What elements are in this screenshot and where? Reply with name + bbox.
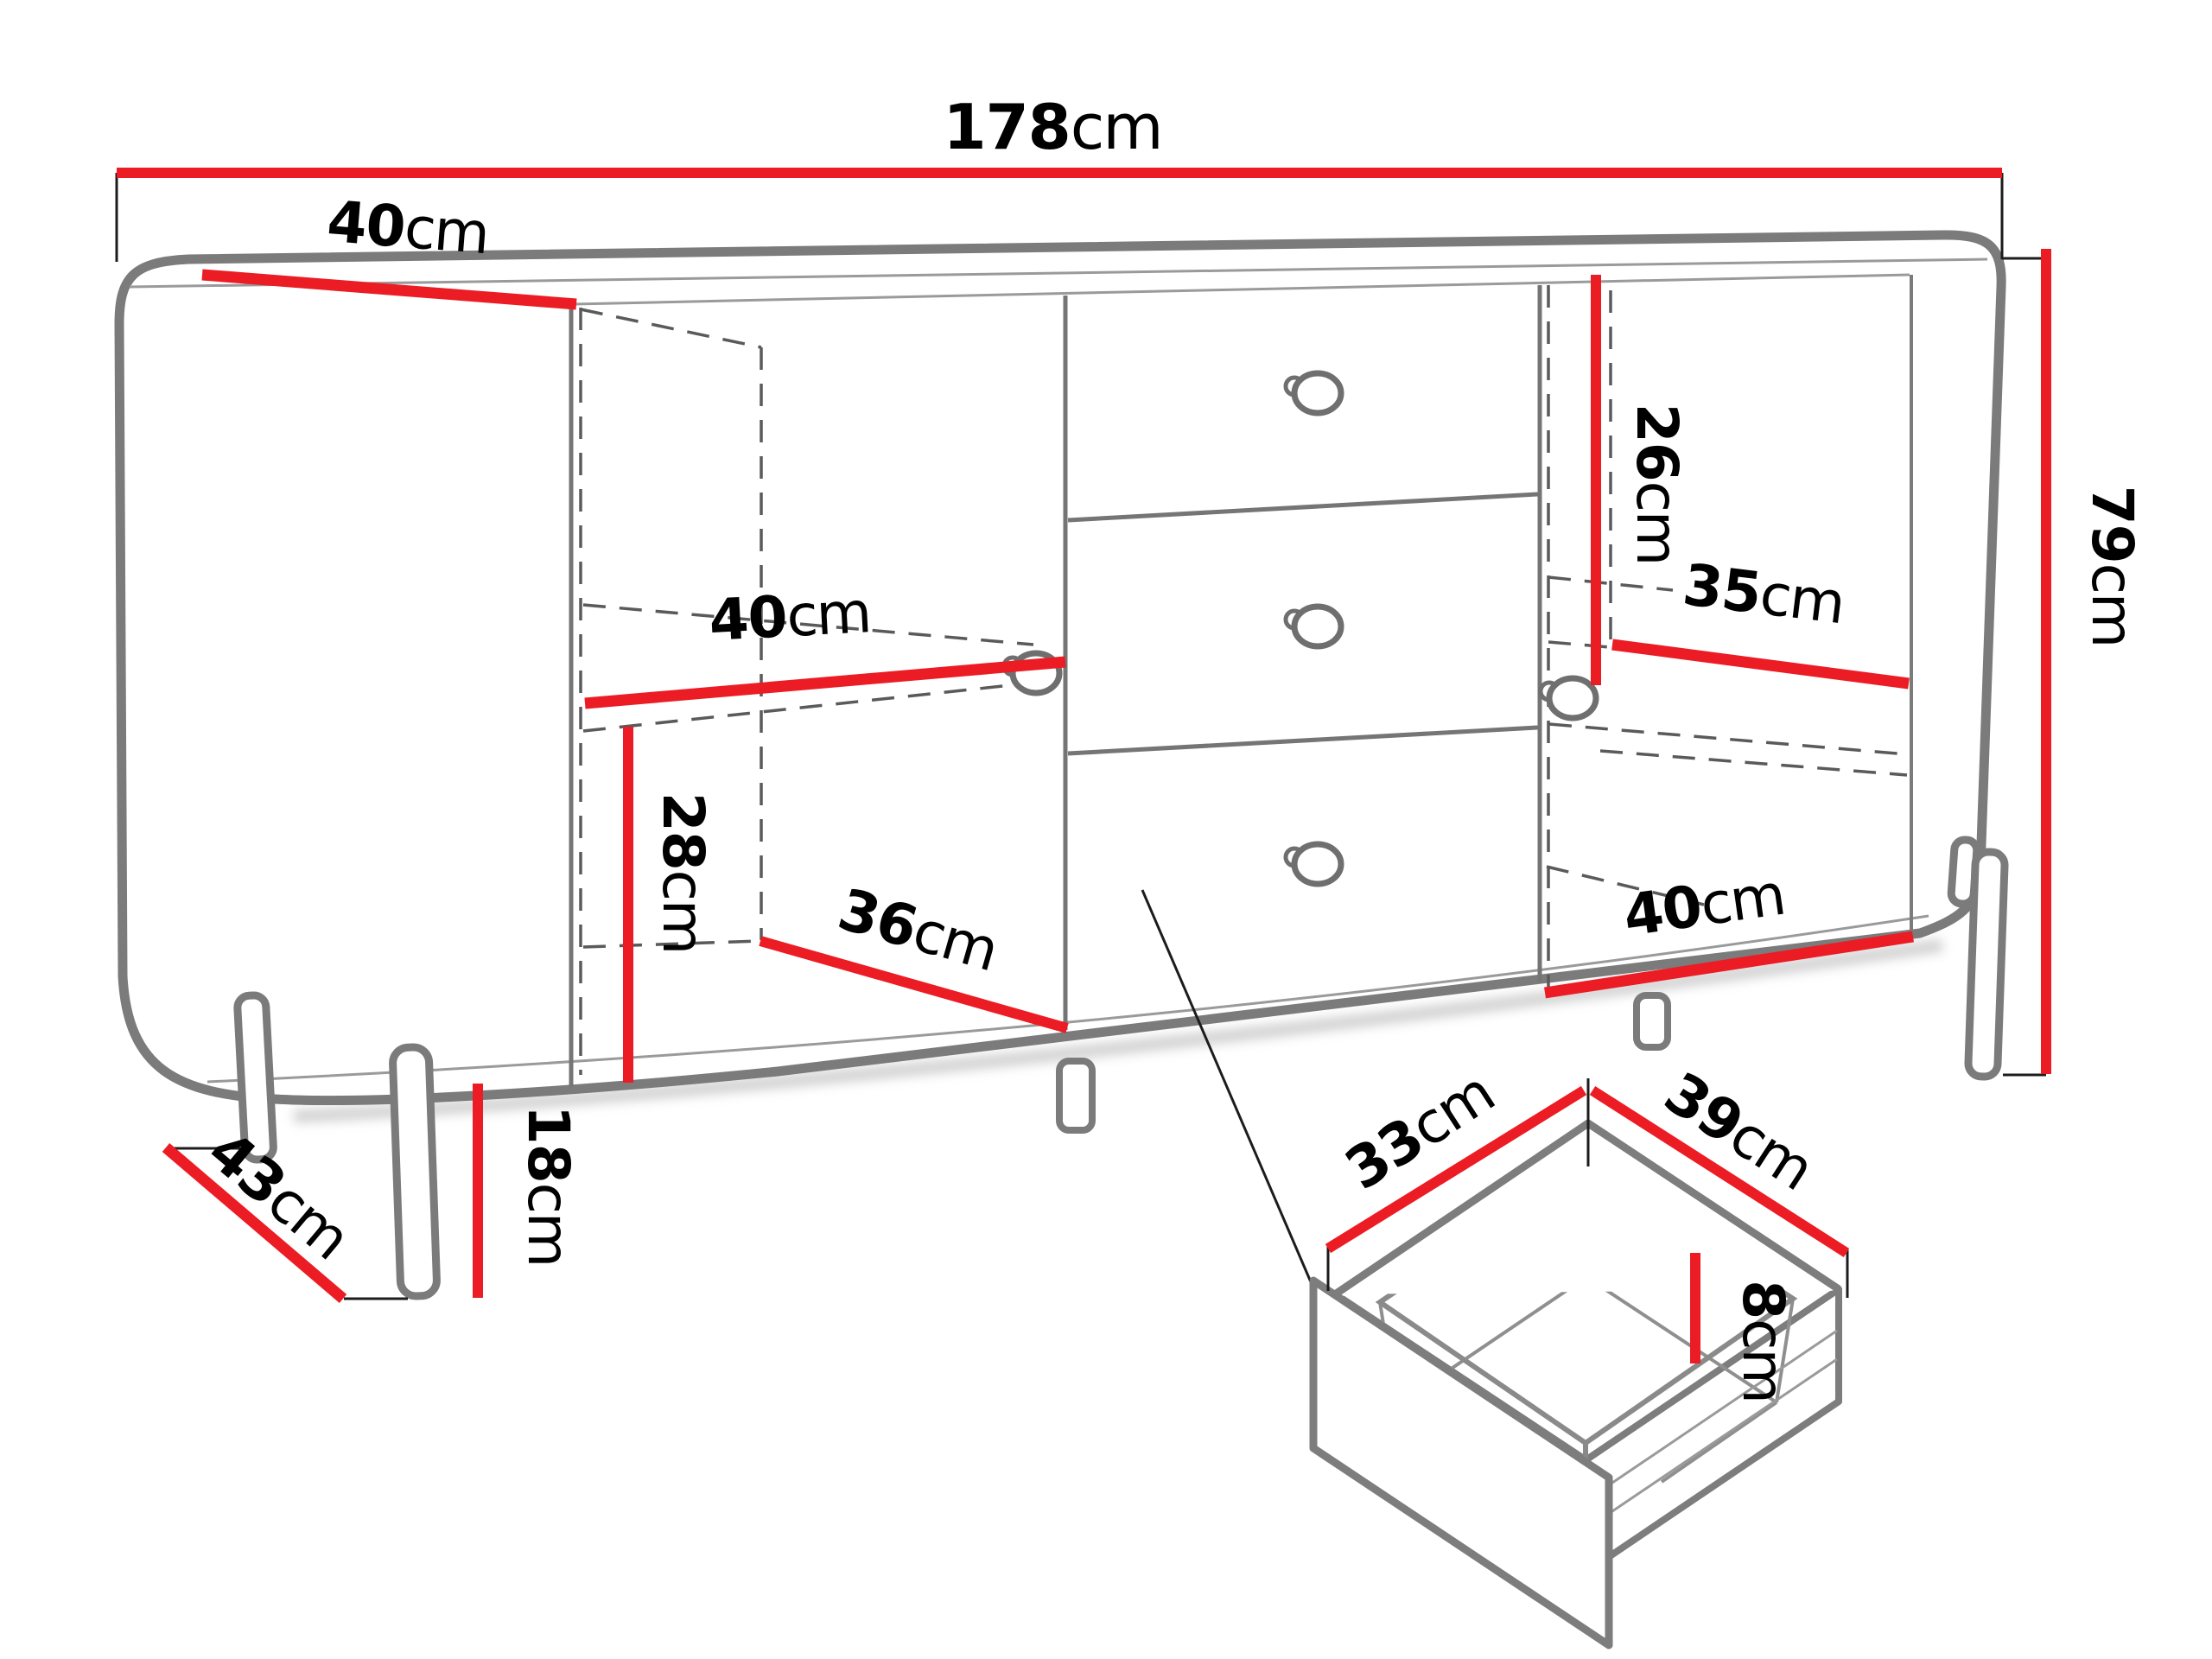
label-drawer-depth: 33cm [1334,1059,1505,1203]
label-drawer-height: 8cm [1730,1280,1796,1402]
label-left-lower-height: 28cm [650,792,716,953]
drawer-right-wall [1586,1289,1839,1573]
diagram-canvas: 178cm 40cm 79cm 26cm 35cm 40cm 28cm 36cm… [0,0,2212,1659]
label-height-total: 79cm [2079,486,2145,646]
label-right-upper-height: 26cm [1624,404,1690,564]
drawer-front-panel [1313,1281,1609,1645]
center-foot-right [1637,995,1668,1047]
front-left-leg [392,1046,437,1296]
label-left-shelf-width: 40cm [708,579,872,654]
front-right-leg [1967,851,2005,1077]
label-width-total: 178cm [943,91,1161,163]
furniture-dimension-diagram: 178cm 40cm 79cm 26cm 35cm 40cm 28cm 36cm… [0,0,2212,1659]
label-depth-top: 40cm [325,188,491,267]
label-leg-height: 18cm [515,1105,582,1266]
width-right-tick [2002,173,2044,259]
center-foot-left [1059,1061,1092,1130]
